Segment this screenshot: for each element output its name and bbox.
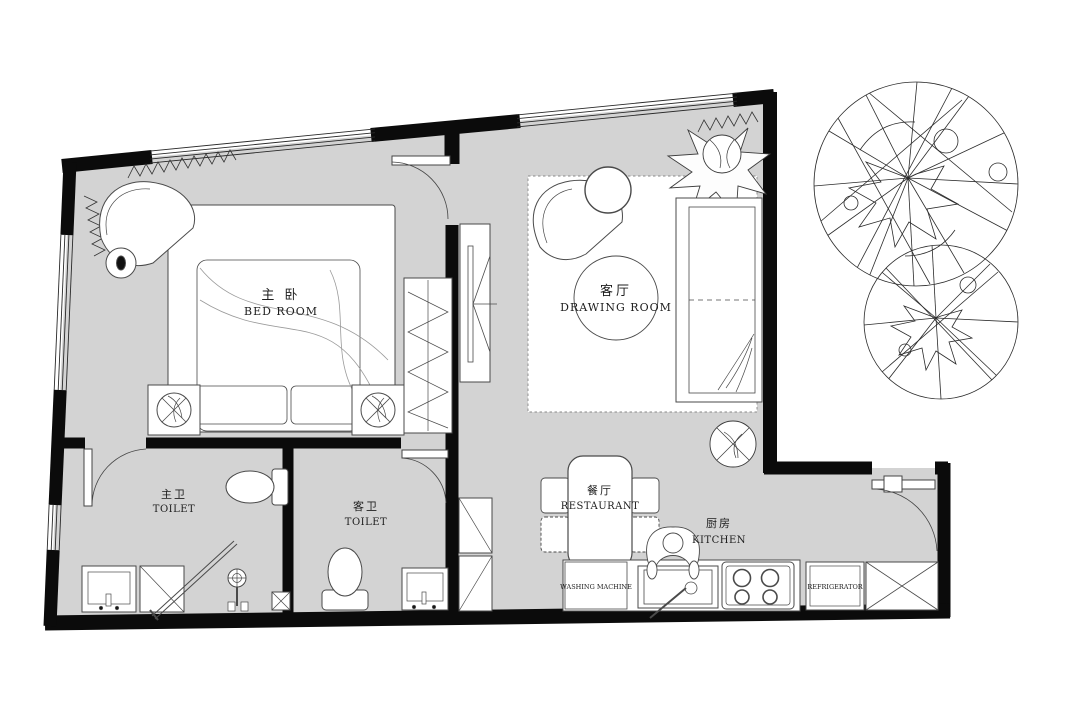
floor-plan-canvas: 主 卧 BED ROOM 客厅 DRAWING ROOM 主卫 TOILET 客… <box>0 0 1090 727</box>
kitchen-label-en: KITCHEN <box>692 535 746 546</box>
nightstand-plant-right <box>352 385 404 435</box>
guest-toilet-label-en: TOILET <box>345 517 387 528</box>
refrigerator-label: REFRIGERATOR <box>807 583 863 591</box>
wardrobe <box>404 278 452 433</box>
dining-label-zh: 餐厅 <box>587 483 613 497</box>
side-table <box>585 167 631 213</box>
guest-sink <box>402 568 448 610</box>
drawing-room-label-zh: 客厅 <box>600 283 632 299</box>
dining-label-en: RESTAURANT <box>561 501 640 512</box>
cabinet-crossed <box>866 562 938 610</box>
master-toilet-label-zh: 主卫 <box>161 488 187 501</box>
washing-machine-label: WASHING MACHINE <box>560 583 632 591</box>
tree-symbol-small <box>864 245 1018 399</box>
kitchen-label-zh: 厨房 <box>706 517 732 530</box>
floor-plan-drawing: 主 卧 BED ROOM 客厅 DRAWING ROOM 主卫 TOILET 客… <box>0 0 1090 727</box>
drawing-room-label-en: DRAWING ROOM <box>560 301 672 314</box>
master-wc <box>226 469 288 505</box>
stove <box>722 562 794 609</box>
sofa <box>676 198 762 402</box>
bedroom-label-zh: 主 卧 <box>261 288 300 303</box>
guest-toilet-label-zh: 客卫 <box>353 499 379 513</box>
floor-lamp <box>106 248 136 278</box>
tree-symbol-large <box>814 82 1018 286</box>
master-toilet-label-en: TOILET <box>153 504 195 515</box>
floor-drain <box>272 592 290 610</box>
plant-pot-floor <box>710 421 756 467</box>
nightstand-plant-left <box>148 385 200 435</box>
bedroom-label-en: BED ROOM <box>244 305 318 318</box>
master-vanity <box>82 566 136 612</box>
